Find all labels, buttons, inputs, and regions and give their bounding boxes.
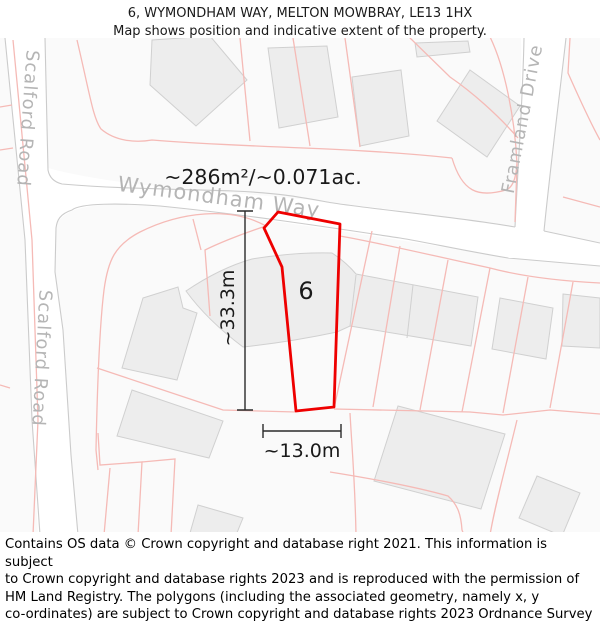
width-measure-line [263, 424, 341, 438]
map-canvas: Wymondham Way Scalford Road Scalford Roa… [0, 38, 600, 532]
parcel-line [350, 413, 356, 532]
parcel-line [563, 197, 600, 207]
parcel-line [240, 38, 250, 141]
parcel-line [98, 433, 142, 532]
area-label: ~286m²/~0.071ac. [164, 165, 362, 189]
parcel-line [0, 385, 10, 388]
height-measure-label: ~33.3m [217, 270, 239, 347]
parcel-line [142, 459, 175, 532]
land-registry-map-page: 6, WYMONDHAM WAY, MELTON MOWBRAY, LE13 1… [0, 0, 600, 625]
building [150, 38, 247, 126]
parcel-line [0, 148, 13, 150]
building [122, 287, 197, 380]
building [519, 476, 580, 532]
property-address-title: 6, WYMONDHAM WAY, MELTON MOWBRAY, LE13 1… [0, 6, 600, 21]
map-subtitle: Map shows position and indicative extent… [0, 24, 600, 39]
building [188, 505, 243, 532]
page-header: 6, WYMONDHAM WAY, MELTON MOWBRAY, LE13 1… [0, 0, 600, 39]
building [268, 46, 338, 128]
plot-number-label: 6 [298, 277, 313, 305]
scalford-road-surface [5, 38, 78, 532]
building [117, 390, 223, 458]
map-svg: Wymondham Way Scalford Road Scalford Roa… [0, 38, 600, 532]
parcel-line [0, 105, 12, 107]
building [415, 41, 470, 57]
copyright-notice: Contains OS data © Crown copyright and d… [0, 536, 597, 625]
parcel-line [193, 219, 201, 250]
parcel-line [104, 468, 110, 532]
rear-boundary-east [334, 409, 600, 415]
width-measure-label: ~13.0m [264, 440, 341, 462]
building [562, 294, 600, 348]
building [352, 70, 409, 146]
parcel-line [568, 38, 600, 140]
